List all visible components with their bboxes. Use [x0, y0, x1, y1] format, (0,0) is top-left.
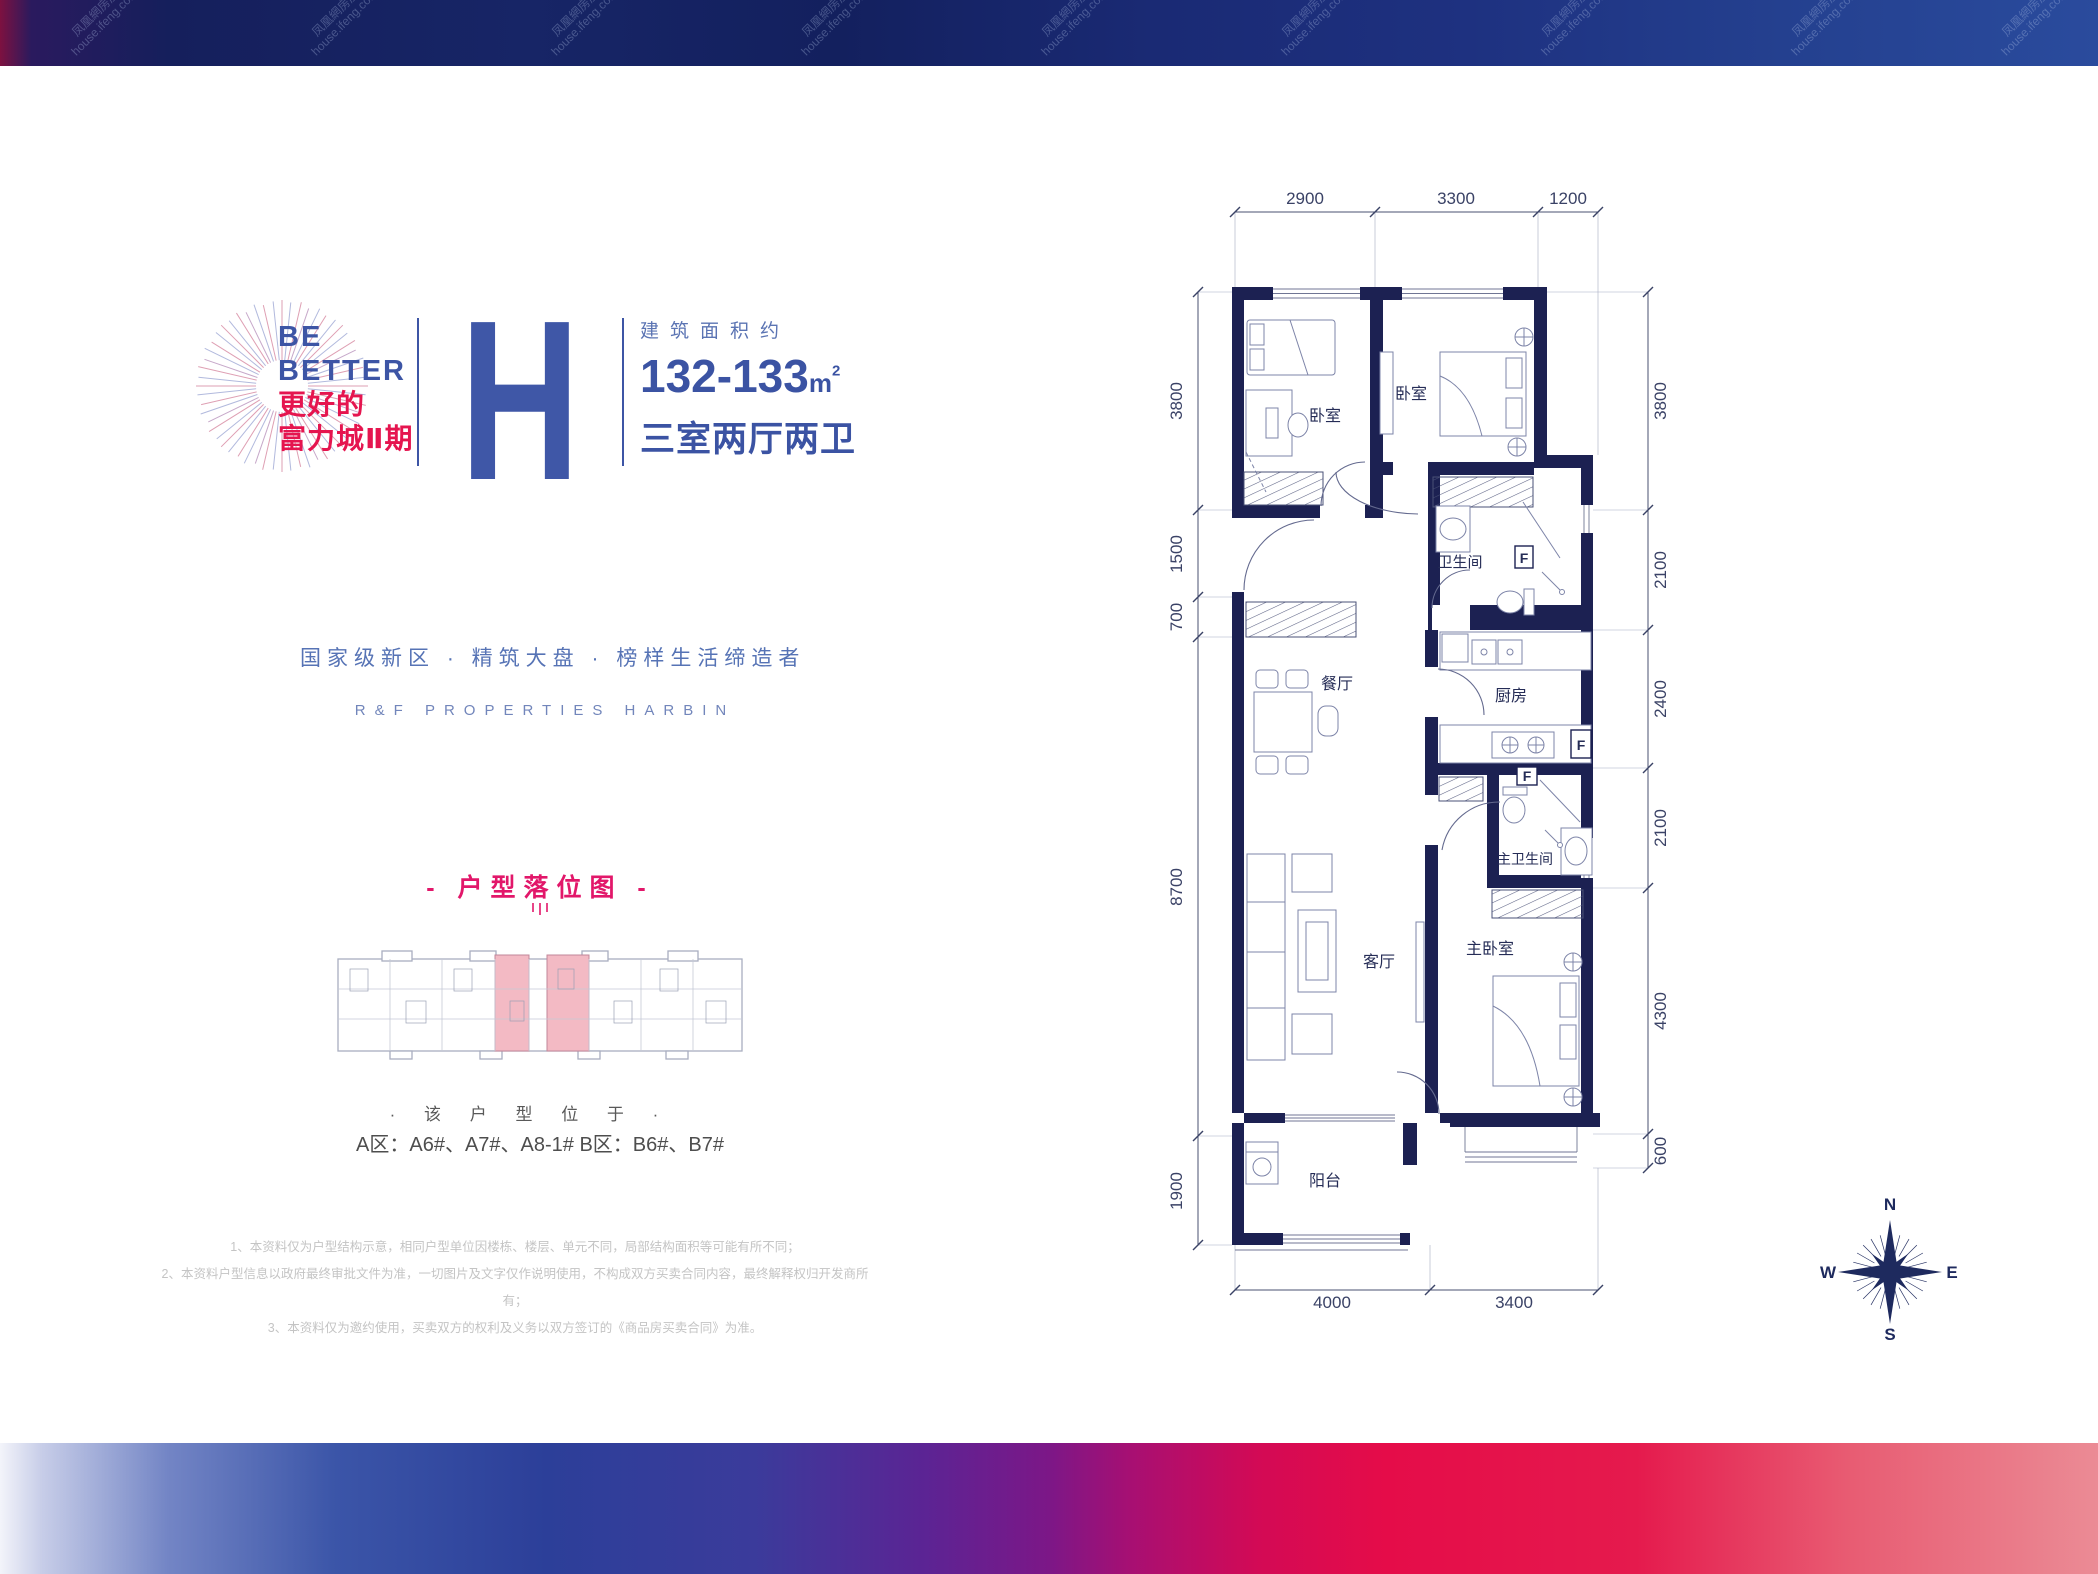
room-label-dining: 餐厅 [1321, 675, 1353, 693]
room-label-kitchen: 厨房 [1495, 687, 1527, 705]
watermark: 凤凰網房産house.ifeng.com [540, 0, 621, 58]
room-label-living: 客厅 [1363, 953, 1395, 971]
tagline-en: R&F PROPERTIES HARBIN [300, 702, 790, 719]
sofa [1247, 854, 1285, 1060]
dim-bottom: 4000 [1313, 1293, 1351, 1312]
area-value: 132-133m2 [640, 349, 900, 403]
room-label-balcony: 阳台 [1309, 1172, 1341, 1190]
brand-line-better: BETTER [278, 354, 413, 388]
compass-w: W [1820, 1263, 1837, 1282]
room-label-bathroom: 卫生间 [1437, 554, 1482, 571]
armchair [1292, 1014, 1332, 1054]
watermark: 凤凰網房産house.ifeng.com [60, 0, 141, 58]
dim-right: 2400 [1651, 680, 1670, 718]
dim-bottom: 3400 [1495, 1293, 1533, 1312]
tv-cabinet [1416, 922, 1424, 1022]
watermark: 凤凰網房産house.ifeng.com [1030, 0, 1111, 58]
compass-n: N [1884, 1195, 1896, 1214]
watermark: 凤凰網房産house.ifeng.com [1990, 0, 2071, 58]
top-watermark-band: 凤凰網房産house.ifeng.com 凤凰網房産house.ifeng.co… [0, 0, 2098, 66]
site-plan [330, 945, 750, 1065]
dim-left: 1900 [1167, 1172, 1186, 1210]
compass-s: S [1884, 1325, 1895, 1342]
brand-line-be: BE [278, 320, 413, 354]
locator-buildings: A区：A6#、A7#、A8-1# B区：B6#、B7# [330, 1128, 750, 1157]
chair [1288, 413, 1308, 437]
dim-left: 3800 [1167, 382, 1186, 420]
bottom-gradient-band [0, 1443, 2098, 1574]
compass-e: E [1946, 1263, 1957, 1282]
dim-right: 2100 [1651, 551, 1670, 589]
locator-title: - 户型落位图 - [380, 868, 700, 904]
mb-toilet [1503, 797, 1525, 823]
dim-right: 2100 [1651, 809, 1670, 847]
disclaimer-line: 2、本资料户型信息以政府最终审批文件为准，一切图片及文字仅作说明使用，不构成双方… [150, 1261, 880, 1315]
dim-top: 3300 [1437, 189, 1475, 208]
room-label-bedroom2: 卧室 [1395, 385, 1427, 403]
disclaimers: 1、本资料仅为户型结构示意，相同户型单位因楼栋、楼层、单元不同，局部结构面积等可… [150, 1234, 880, 1342]
brand-line-slogan: 更好的 [278, 388, 413, 422]
watermark: 凤凰網房産house.ifeng.com [1780, 0, 1861, 58]
f-mark: F [1577, 737, 1586, 753]
disclaimer-line: 1、本资料仅为户型结构示意，相同户型单位因楼栋、楼层、单元不同，局部结构面积等可… [150, 1234, 880, 1261]
watermark: 凤凰網房産house.ifeng.com [1270, 0, 1351, 58]
poster-canvas: 凤凰網房産house.ifeng.com 凤凰網房産house.ifeng.co… [0, 0, 2098, 1574]
dining-chair [1318, 706, 1338, 736]
dim-right: 3800 [1651, 382, 1670, 420]
room-label-master-bath: 主卫生间 [1497, 851, 1553, 867]
fridge [1442, 634, 1468, 662]
f-mark: F [1520, 550, 1529, 566]
rooms-label: 三室两厅两卫 [640, 411, 900, 462]
svg-text:H: H [460, 316, 580, 482]
armchair [1292, 854, 1332, 892]
room-label-bedroom1: 卧室 [1309, 407, 1341, 425]
divider-line [417, 318, 419, 466]
dim-right: 4300 [1651, 992, 1670, 1030]
compass-rose: N E S W [1818, 1192, 1963, 1342]
unit-info: 建筑面积约 132-133m2 三室两厅两卫 [640, 316, 900, 462]
dim-left: 8700 [1167, 868, 1186, 906]
watermark: 凤凰網房産house.ifeng.com [790, 0, 871, 58]
floorplan: 2900 3300 1200 3800 1500 700 8700 1900 3… [1140, 140, 1720, 1360]
watermark: 凤凰網房産house.ifeng.com [300, 0, 381, 58]
dim-right: 600 [1651, 1137, 1670, 1165]
area-label: 建筑面积约 [640, 316, 900, 343]
dim-top: 1200 [1549, 189, 1587, 208]
dim-top: 2900 [1286, 189, 1324, 208]
brand-line-project: 富力城Ⅱ期 [278, 422, 413, 456]
locator-title-marks [528, 903, 552, 915]
dim-left: 700 [1167, 603, 1186, 631]
compass-star [1838, 1220, 1942, 1324]
locator-note: · 该 户 型 位 于 · [380, 1100, 680, 1125]
watermark: 凤凰網房産house.ifeng.com [1530, 0, 1611, 58]
dim-left: 1500 [1167, 535, 1186, 573]
unit-letter: H [458, 316, 582, 482]
dresser [1380, 352, 1393, 434]
toilet [1497, 591, 1523, 613]
disclaimer-line: 3、本资料仅为邀约使用，买卖双方的权利及义务以双方签订的《商品房买卖合同》为准。 [150, 1315, 880, 1342]
f-mark: F [1523, 768, 1532, 784]
room-label-master-bedroom: 主卧室 [1466, 940, 1514, 958]
brand-logo: BE BETTER 更好的 富力城Ⅱ期 [278, 320, 413, 456]
divider-line [622, 318, 624, 466]
dining-table [1254, 692, 1312, 752]
mb-toilet-tank [1503, 787, 1527, 795]
bath-sink [1440, 518, 1466, 540]
mb-sink [1565, 837, 1587, 865]
toilet-tank [1524, 589, 1534, 615]
tagline-cn: 国家级新区 · 精筑大盘 · 榜样生活缔造者 [300, 642, 790, 672]
stove [1492, 732, 1554, 758]
